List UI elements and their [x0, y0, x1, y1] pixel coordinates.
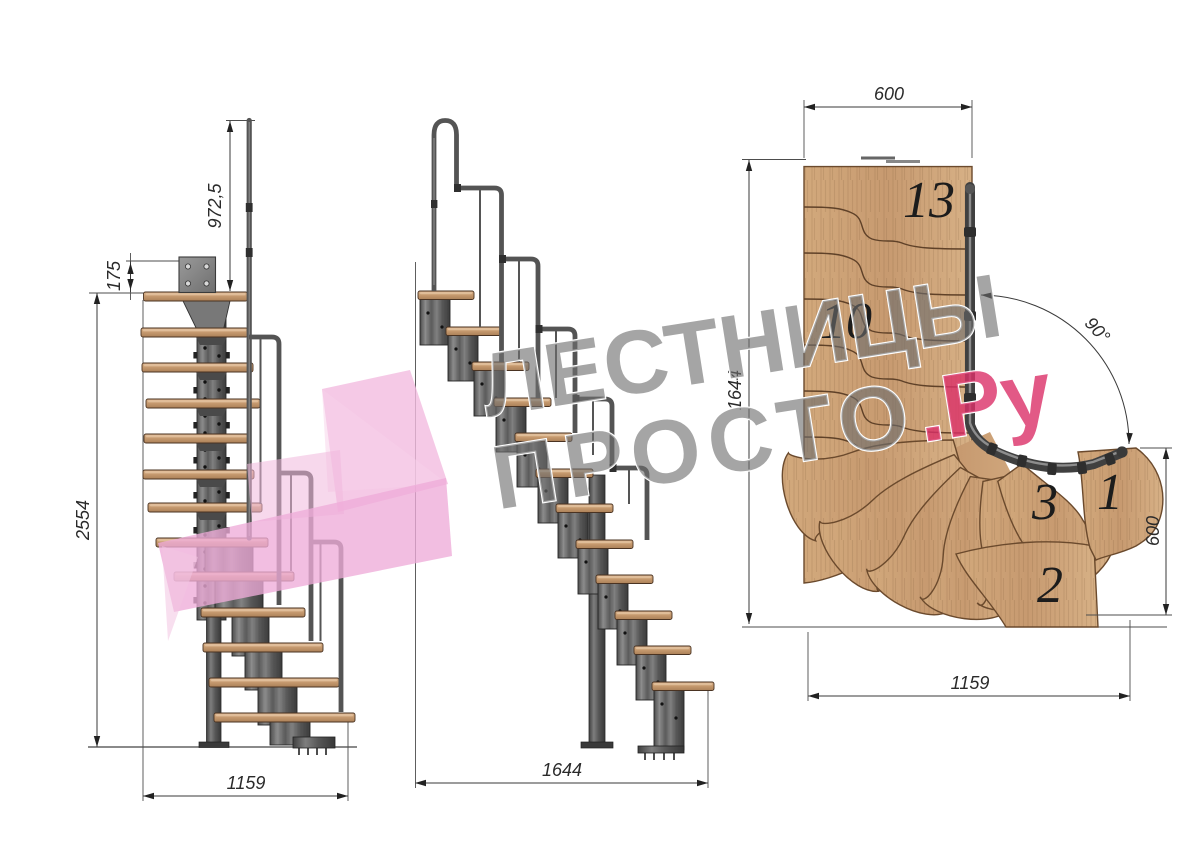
svg-text:1159: 1159: [227, 773, 266, 793]
svg-text:.Ру: .Ру: [910, 342, 1059, 462]
svg-text:1159: 1159: [951, 673, 990, 693]
svg-text:972,5: 972,5: [205, 182, 225, 228]
svg-text:600: 600: [1143, 516, 1163, 546]
svg-text:1644: 1644: [542, 760, 582, 780]
svg-text:2: 2: [1037, 557, 1063, 614]
svg-text:13: 13: [903, 172, 955, 229]
svg-text:600: 600: [874, 84, 904, 104]
svg-text:3: 3: [1031, 474, 1058, 531]
svg-text:2554: 2554: [73, 500, 93, 541]
svg-text:1: 1: [1097, 464, 1123, 521]
svg-text:175: 175: [104, 260, 124, 291]
